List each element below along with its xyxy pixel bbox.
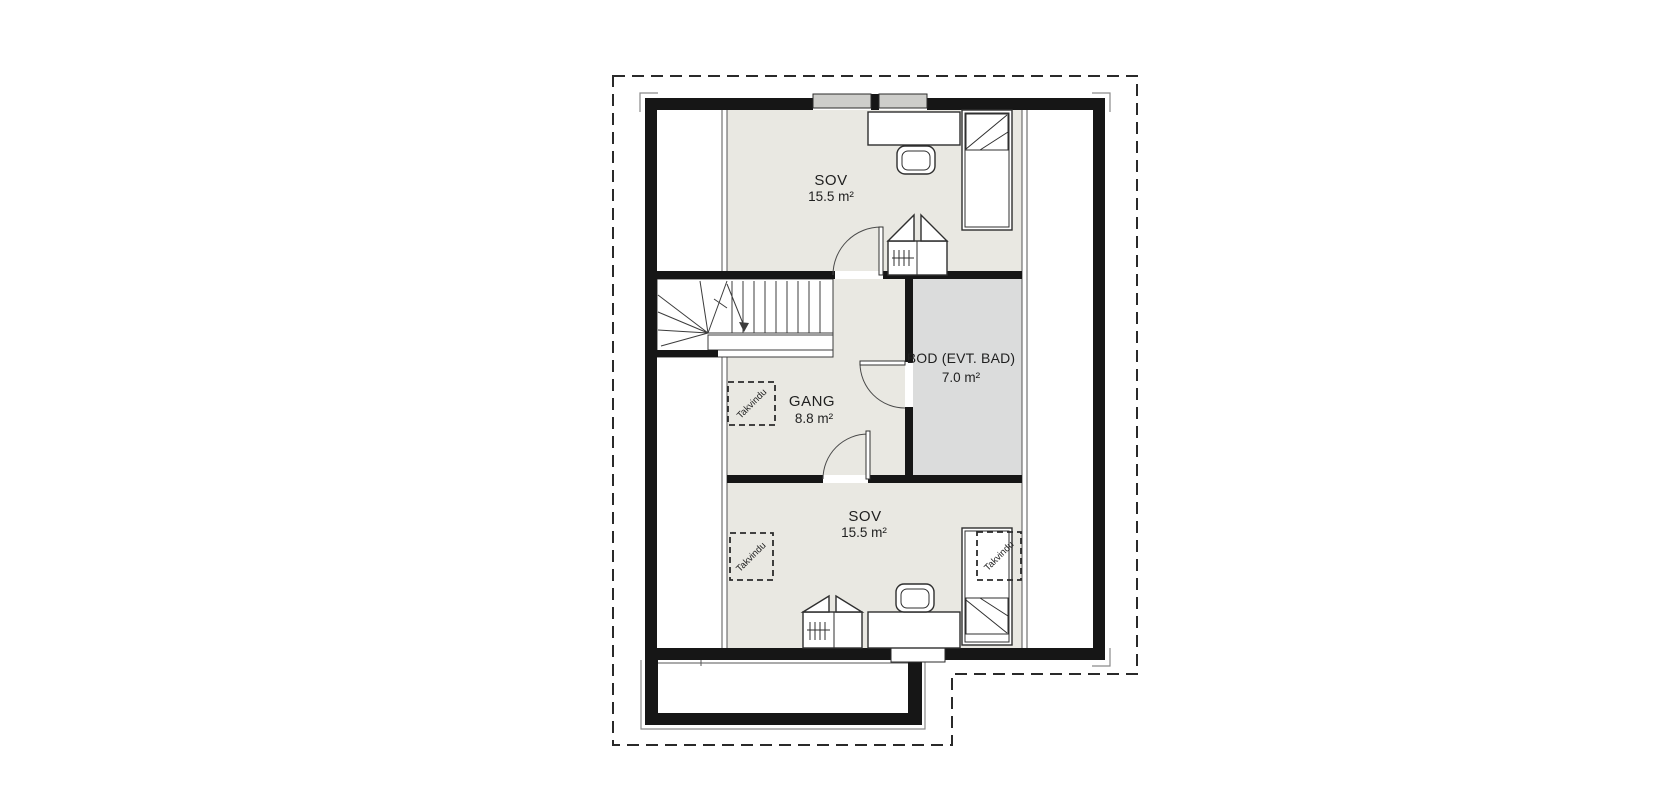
desk-sov-bottom: [868, 612, 960, 648]
wall-gang-sovbottom-left: [727, 475, 823, 483]
wall-top-left: [645, 98, 813, 110]
wall-sovtop-gang-left: [645, 271, 835, 279]
balcony-wall-bottom: [645, 713, 922, 725]
bed-sov-top: [962, 110, 1012, 230]
floor-plan-canvas: Takvindu Takvindu Takvindu SOV 15.5 m² G…: [0, 0, 1670, 800]
wall-left: [645, 98, 657, 660]
chair-sov-top: [897, 146, 935, 174]
wall-bottom-left: [645, 648, 891, 660]
window-top-2: [879, 94, 927, 108]
room-area-gang: 8.8 m²: [795, 411, 834, 426]
room-area-sov-bottom: 15.5 m²: [841, 525, 887, 540]
wall-bottom-right: [945, 648, 1105, 660]
desk-sov-top: [868, 112, 960, 145]
balcony-wall-right: [908, 660, 922, 713]
room-label-sov-bottom: SOV: [848, 508, 881, 525]
stair-handrail: [708, 335, 833, 350]
staircase: [657, 279, 833, 357]
balcony-inner-line: [658, 660, 908, 666]
wall-bod-sovbottom-right: [868, 475, 1022, 483]
door-leaf-sov-top: [879, 227, 883, 275]
chair-sov-bottom: [896, 584, 934, 612]
room-label-bod: BOD (EVT. BAD): [907, 350, 1016, 366]
window-mullion: [871, 94, 879, 110]
door-leaf-bod: [860, 361, 905, 365]
wall-top-right: [927, 98, 1105, 110]
room-label-sov-top: SOV: [814, 172, 847, 189]
wall-gang-bod-lower: [905, 407, 913, 475]
room-area-sov-top: 15.5 m²: [808, 189, 854, 204]
floor-plan-page: Takvindu Takvindu Takvindu SOV 15.5 m² G…: [0, 0, 1670, 800]
window-top-1: [813, 94, 871, 108]
room-area-bod: 7.0 m²: [942, 370, 981, 385]
room-label-gang: GANG: [789, 393, 835, 410]
wall-stair-stub: [657, 350, 718, 357]
wall-right: [1093, 98, 1105, 660]
door-leaf-sov-bottom: [866, 431, 870, 479]
